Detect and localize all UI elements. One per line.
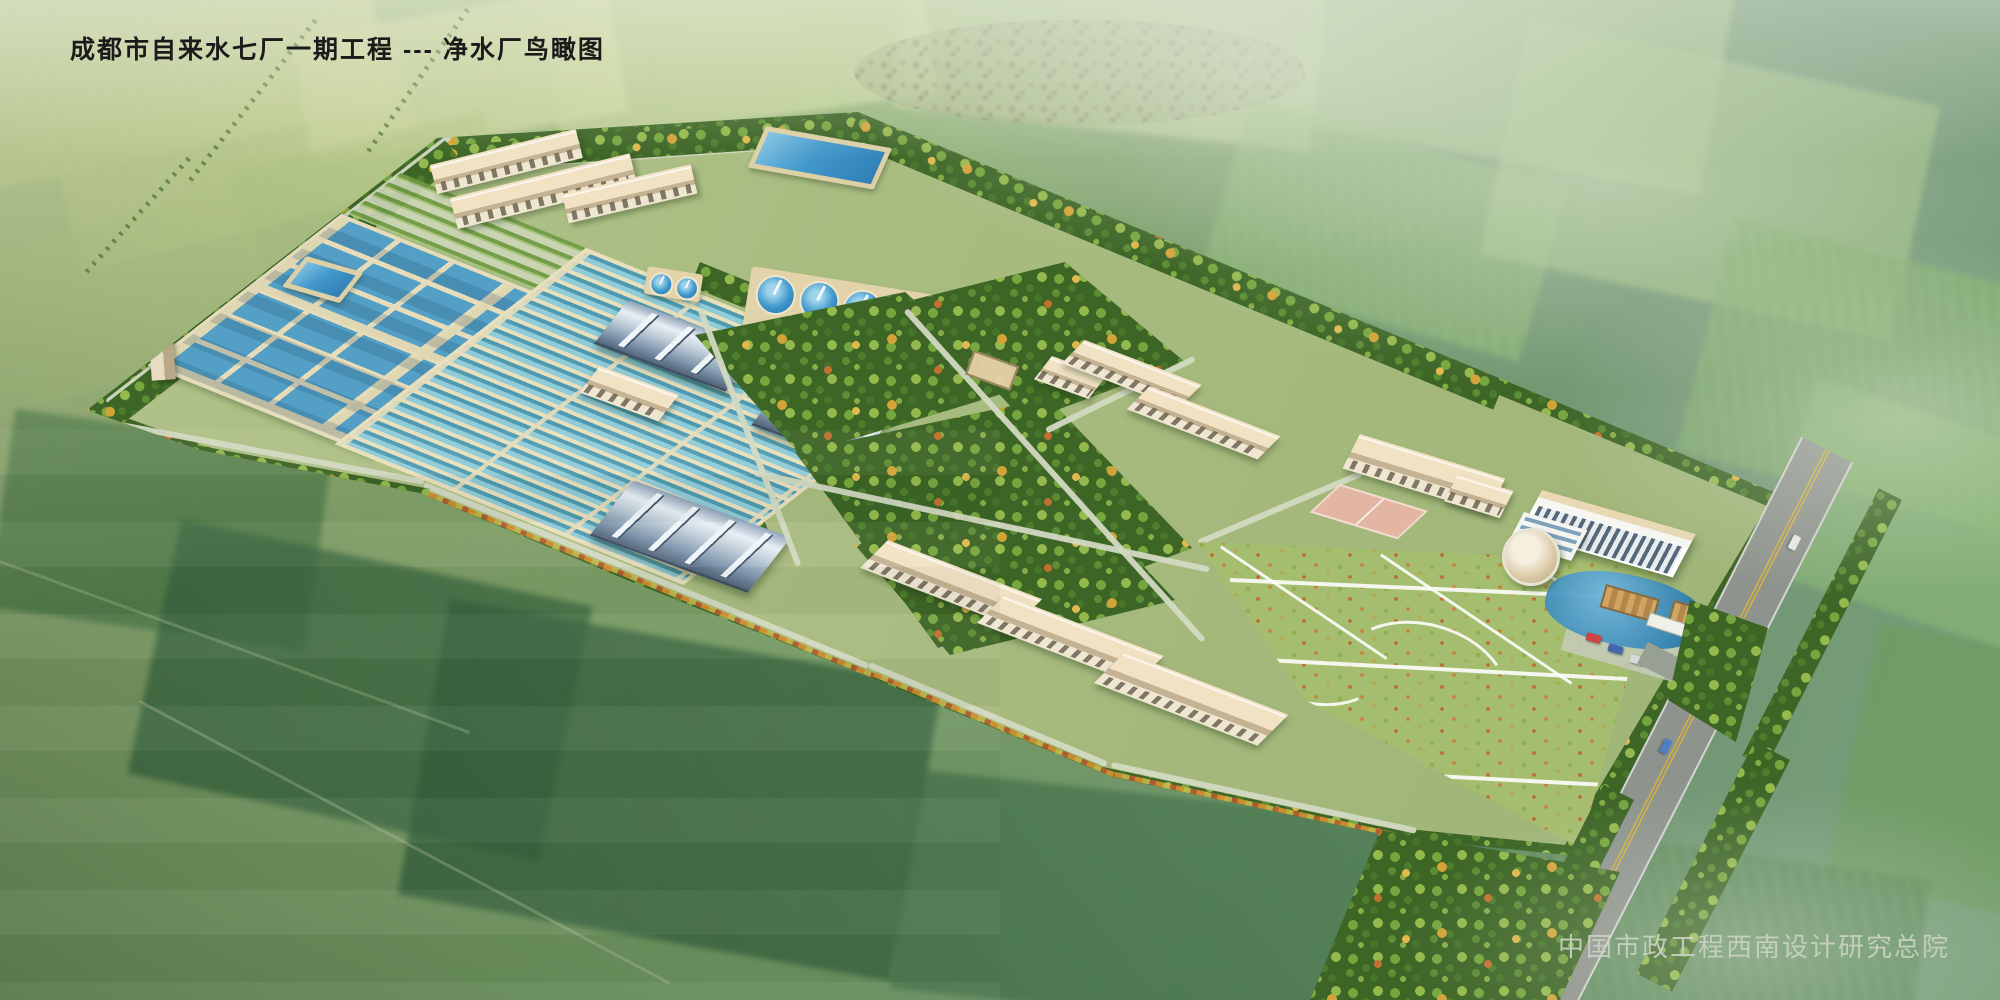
round-tank [673, 275, 700, 302]
aerial-rendering: 成都市自来水七厂一期工程 --- 净水厂鸟瞰图 中国市政工程西南设计研究总院 [0, 0, 2000, 1000]
round-tank [648, 271, 675, 298]
round-pavilion [1502, 528, 1560, 586]
clarifier-tank [753, 272, 799, 318]
car-on-road [1788, 534, 1802, 551]
page-title: 成都市自来水七厂一期工程 --- 净水厂鸟瞰图 [70, 30, 605, 66]
court-line [1355, 499, 1384, 525]
design-institute-credit: 中国市政工程西南设计研究总院 [1558, 927, 1950, 964]
